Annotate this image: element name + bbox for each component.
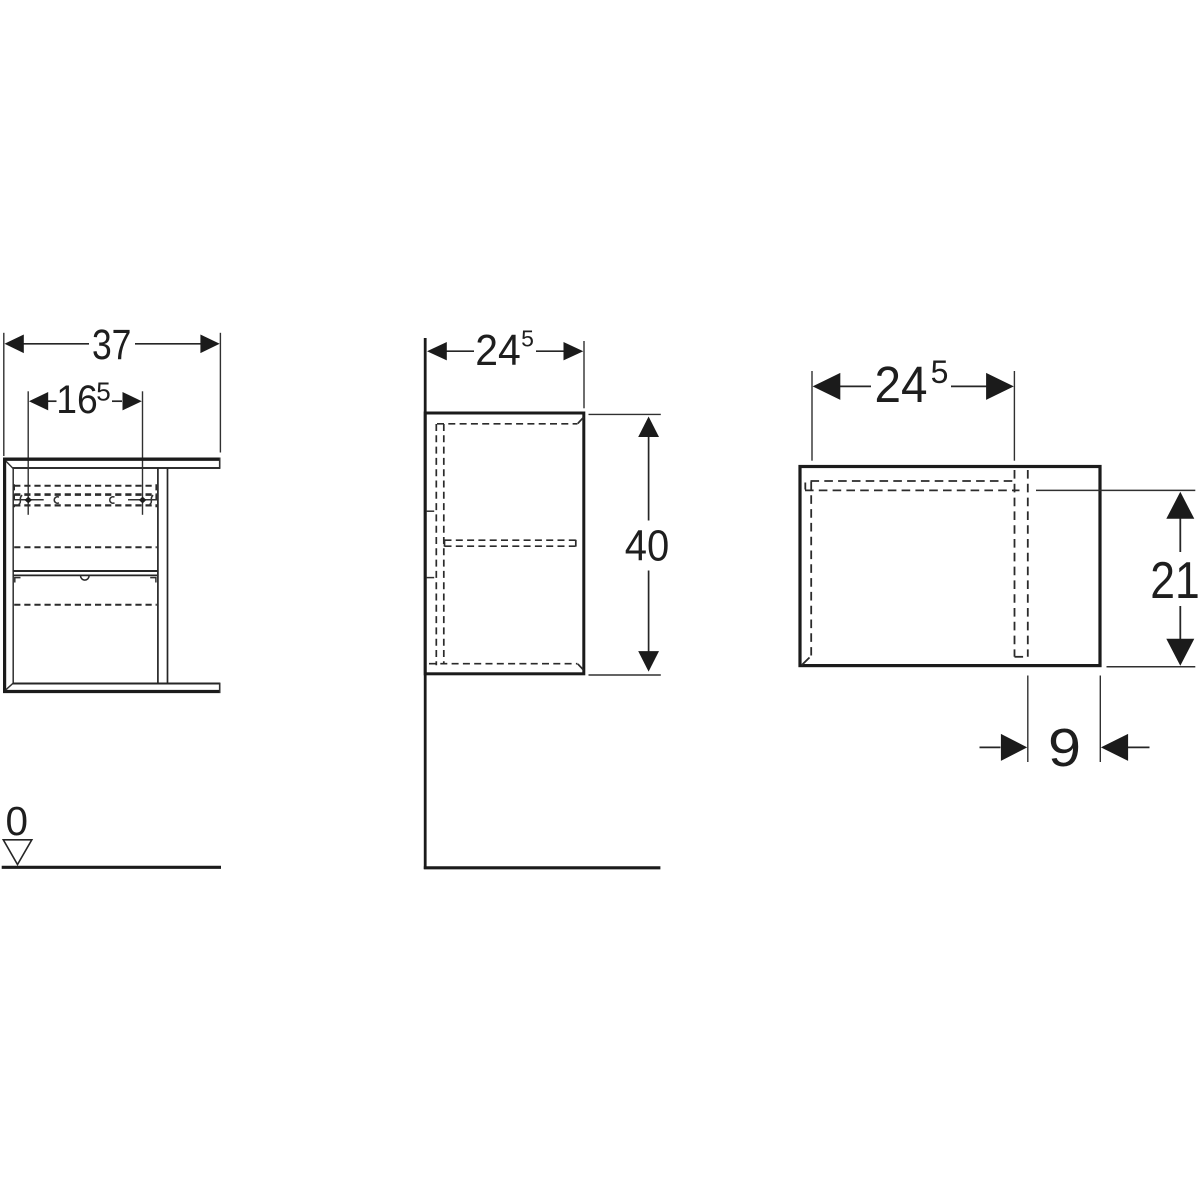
svg-text:5: 5: [521, 326, 534, 352]
svg-text:0: 0: [6, 798, 29, 844]
svg-text:21: 21: [1150, 551, 1200, 609]
svg-text:24: 24: [475, 327, 521, 375]
svg-text:40: 40: [625, 523, 670, 571]
svg-text:37: 37: [92, 322, 132, 369]
svg-text:24: 24: [875, 356, 928, 413]
svg-text:5: 5: [931, 354, 949, 390]
svg-text:16: 16: [56, 378, 98, 422]
svg-text:9: 9: [1048, 719, 1081, 778]
svg-text:5: 5: [96, 377, 110, 407]
